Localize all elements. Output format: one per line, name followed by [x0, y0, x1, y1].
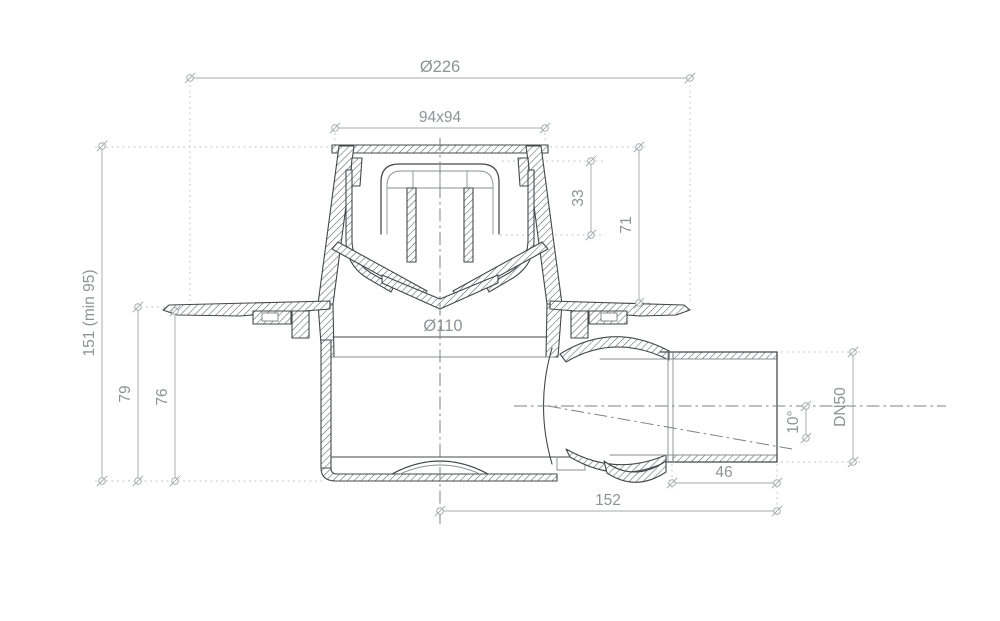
dim-label-insert-depth: 33: [570, 189, 587, 206]
dim-membrane-to-bottom: 76: [154, 306, 180, 486]
frame-spigot-right: [546, 304, 562, 357]
dim-outer-diameter: Ø226: [185, 58, 695, 83]
dim-label-body-diameter: Ø110: [423, 317, 462, 335]
dim-label-flange-to-bottom: 79: [117, 385, 134, 402]
insert-leg-left: [407, 188, 416, 262]
dim-flange-to-bottom: 79: [117, 302, 143, 486]
clamp-notch-left: [262, 313, 278, 321]
sump-wall-left: [321, 340, 331, 468]
centerlines: [440, 138, 946, 524]
ball-wall-upper: [560, 337, 669, 362]
dim-label-outlet-angle: 10°: [785, 410, 802, 433]
pipe-wall-top: [673, 352, 777, 359]
dim-label-upper-height: 71: [618, 216, 635, 233]
dim-label-grate-size: 94x94: [419, 109, 462, 126]
dim-outlet-offset: 152: [435, 492, 782, 516]
dim-body-diameter: Ø110: [423, 317, 462, 335]
pipe-wall-bottom: [673, 455, 777, 462]
insert-leg-right: [464, 188, 473, 262]
pipe-slope-centerline: [548, 406, 792, 449]
dim-label-outer-diameter: Ø226: [420, 58, 460, 76]
clamp-notch-right: [601, 313, 617, 321]
dim-socket-length: 46: [667, 464, 782, 488]
dim-grate-size: 94x94: [330, 109, 550, 133]
dim-outlet-diameter: DN50: [832, 347, 858, 467]
drain-body: [163, 145, 777, 482]
dim-insert-depth: 33: [570, 156, 596, 240]
technical-drawing-canvas: Ø226 94x94 33 71 151 (min 95) 79: [0, 0, 1000, 621]
clamp-block-right: [571, 311, 588, 338]
dim-outlet-angle: 10°: [785, 401, 811, 443]
dim-label-total-height: 151 (min 95): [81, 269, 98, 356]
dim-label-outlet-offset: 152: [595, 492, 621, 509]
dim-label-socket-length: 46: [715, 464, 732, 481]
clamp-block-left: [292, 311, 309, 338]
dim-label-membrane-to-bottom: 76: [154, 388, 171, 405]
floor-drain-section-drawing: Ø226 94x94 33 71 151 (min 95) 79: [0, 0, 1000, 621]
dim-label-outlet-diameter: DN50: [832, 387, 849, 427]
dim-total-height: 151 (min 95): [81, 141, 107, 486]
sump-bottom: [321, 468, 557, 481]
dim-upper-height: 71: [618, 142, 644, 308]
